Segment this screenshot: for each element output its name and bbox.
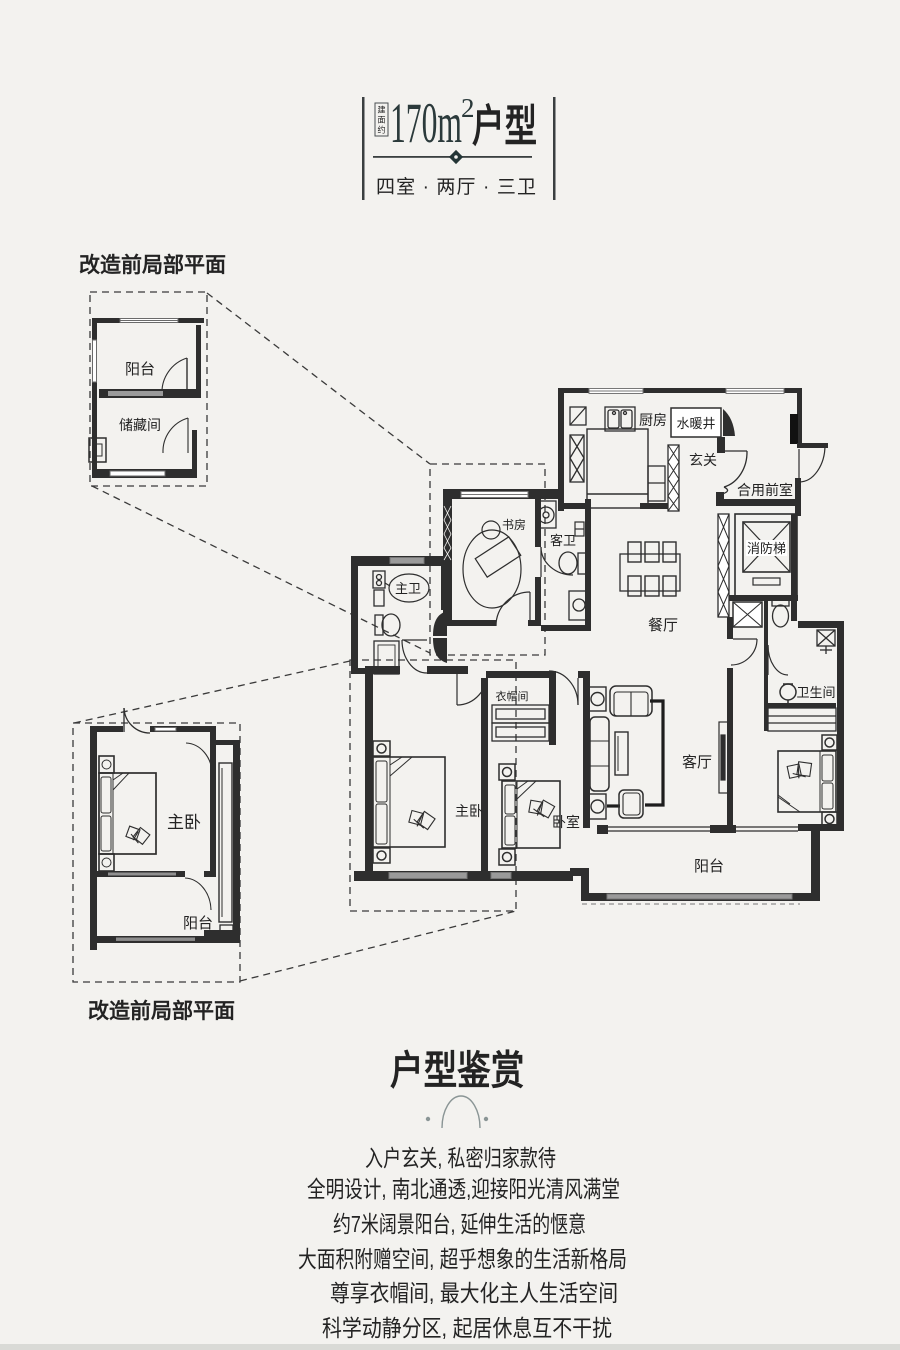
svg-text:水暖井: 水暖井 — [676, 416, 715, 431]
svg-text:客卫: 客卫 — [550, 533, 576, 548]
svg-text:建: 建 — [378, 105, 386, 115]
svg-text:改造前局部平面: 改造前局部平面 — [79, 253, 226, 277]
svg-text:阳台: 阳台 — [694, 858, 724, 875]
svg-text:入户玄关, 私密归家款待: 入户玄关, 私密归家款待 — [365, 1145, 556, 1171]
svg-text:主卫: 主卫 — [395, 581, 421, 596]
svg-text:客厅: 客厅 — [682, 754, 712, 771]
svg-text:科学动静分区, 起居休息互不干扰: 科学动静分区, 起居休息互不干扰 — [322, 1315, 612, 1341]
svg-text:储藏间: 储藏间 — [119, 417, 161, 433]
svg-text:约7米阔景阳台, 延伸生活的惬意: 约7米阔景阳台, 延伸生活的惬意 — [333, 1211, 586, 1237]
svg-text:合用前室: 合用前室 — [737, 482, 793, 498]
svg-text:大面积附赠空间, 超乎想象的生活新格局: 大面积附赠空间, 超乎想象的生活新格局 — [298, 1246, 627, 1272]
svg-text:卧室: 卧室 — [552, 814, 580, 830]
svg-text:玄关: 玄关 — [689, 452, 717, 468]
svg-text:四室 · 两厅 · 三卫: 四室 · 两厅 · 三卫 — [376, 176, 536, 198]
svg-text:卫生间: 卫生间 — [796, 685, 835, 700]
svg-text:消防梯: 消防梯 — [747, 541, 786, 556]
svg-text:改造前局部平面: 改造前局部平面 — [88, 999, 235, 1023]
svg-text:约: 约 — [378, 125, 386, 135]
svg-text:厨房: 厨房 — [639, 412, 667, 428]
svg-text:户型: 户型 — [472, 102, 537, 151]
svg-text:尊享衣帽间, 最大化主人生活空间: 尊享衣帽间, 最大化主人生活空间 — [330, 1280, 618, 1306]
svg-text:餐厅: 餐厅 — [648, 617, 678, 634]
svg-text:面: 面 — [378, 116, 386, 125]
svg-text:户型鉴赏: 户型鉴赏 — [390, 1048, 524, 1092]
svg-text:主卧: 主卧 — [167, 813, 201, 832]
svg-text:阳台: 阳台 — [183, 915, 213, 932]
svg-text:衣帽间: 衣帽间 — [496, 689, 529, 703]
svg-text:全明设计, 南北通透,迎接阳光清风满堂: 全明设计, 南北通透,迎接阳光清风满堂 — [307, 1176, 620, 1202]
svg-text:主卧: 主卧 — [455, 803, 483, 819]
svg-text:阳台: 阳台 — [125, 361, 155, 378]
svg-text:170m: 170m — [390, 92, 462, 155]
svg-text:书房: 书房 — [502, 517, 526, 532]
